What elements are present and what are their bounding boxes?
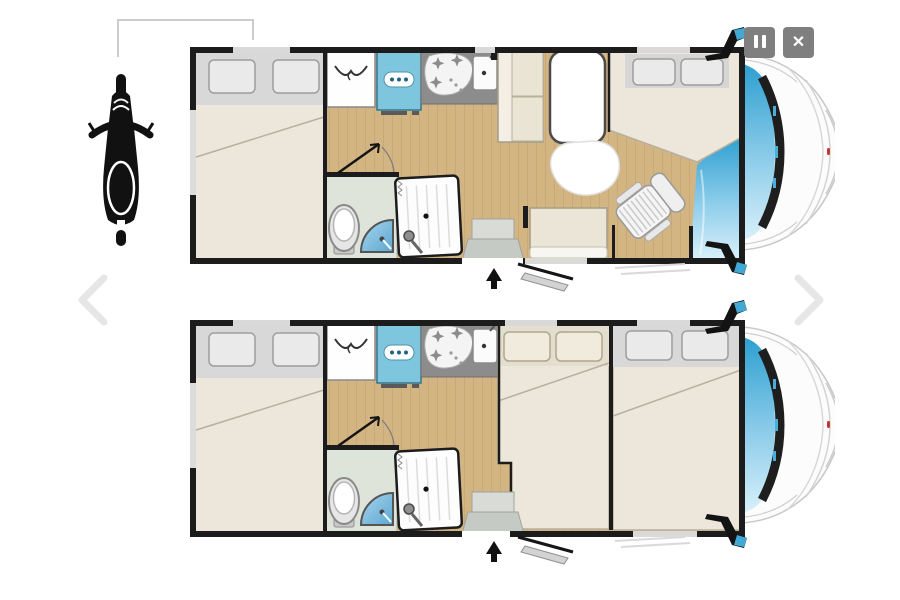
shower-head [404, 231, 414, 241]
refrigerator [377, 50, 421, 115]
pause-icon [752, 35, 768, 51]
pillow [504, 332, 550, 361]
vehicle-cab-front [742, 54, 835, 250]
brand-badge [827, 421, 830, 428]
pillow [273, 333, 319, 366]
close-icon: ✕ [792, 35, 805, 51]
shower-cubicle [395, 448, 462, 530]
pillow [626, 331, 672, 360]
brand-badge [827, 148, 830, 155]
hob-and-sink [421, 49, 498, 105]
open-entry-door [518, 264, 573, 291]
entrance-bench [530, 208, 607, 258]
pillow [209, 333, 255, 366]
pillow [556, 332, 602, 361]
cab-double-bed [609, 323, 741, 530]
floorplan-night-layout [185, 298, 835, 568]
wardrobe [327, 50, 375, 107]
shower-cubicle [395, 175, 462, 257]
dinette-double-bed [498, 326, 609, 529]
prev-arrow-button[interactable] [72, 272, 116, 328]
pillow [273, 60, 319, 93]
dinette-bench [498, 51, 543, 142]
pedestal-table [550, 51, 605, 143]
entry-arrow [486, 268, 502, 289]
pause-button[interactable] [744, 27, 775, 58]
next-arrow-button[interactable] [786, 272, 830, 328]
rear-bed [193, 50, 327, 259]
floorplan-day-layout [185, 25, 835, 295]
open-entry-door [518, 537, 573, 564]
pillow [209, 60, 255, 93]
refrigerator [377, 323, 421, 388]
floorplan-viewer: ✕ [0, 0, 900, 600]
motorcycle-icon [88, 72, 154, 252]
shower-head [404, 504, 414, 514]
hob-and-sink [421, 322, 498, 378]
chevron-right-icon [786, 272, 830, 328]
pillow [681, 59, 723, 85]
pillow [682, 331, 728, 360]
wardrobe [327, 323, 375, 380]
pillow [633, 59, 675, 85]
close-button[interactable]: ✕ [783, 27, 814, 58]
chevron-left-icon [72, 272, 116, 328]
rear-bed [193, 323, 327, 532]
entry-arrow [486, 541, 502, 562]
vehicle-cab-front [742, 327, 835, 523]
